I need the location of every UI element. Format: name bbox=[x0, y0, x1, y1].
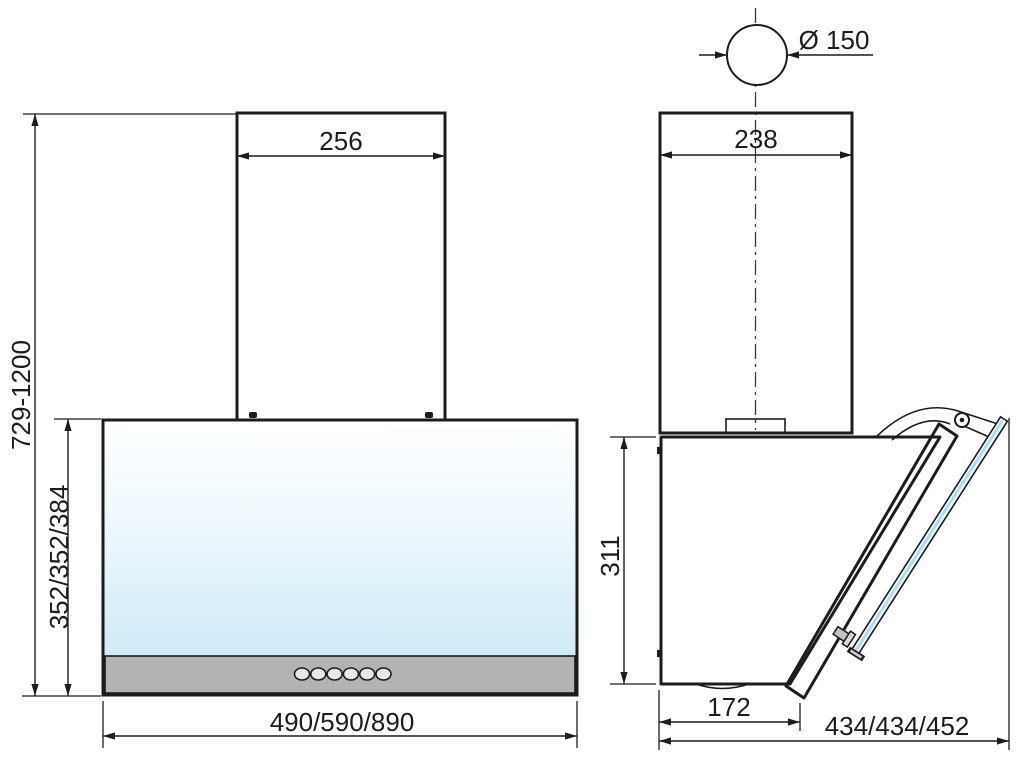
hinge-bracket-arc bbox=[876, 408, 1001, 437]
control-button bbox=[327, 668, 342, 680]
dim-front-chimney-width: 256 bbox=[237, 126, 445, 156]
chimney-screw-right bbox=[425, 412, 433, 418]
tilt-panel-frame bbox=[786, 424, 957, 698]
overall-height-label: 729-1200 bbox=[6, 340, 36, 450]
hood-dimension-drawing: 256 729-1200 352/352/384 490/590/890 bbox=[0, 0, 1020, 757]
front-body-width-label: 490/590/890 bbox=[270, 707, 415, 737]
dim-side-chimney-depth: 238 bbox=[660, 124, 852, 155]
side-chimney-depth-label: 238 bbox=[734, 124, 777, 154]
front-view: 256 729-1200 352/352/384 490/590/890 bbox=[6, 113, 577, 748]
control-button bbox=[376, 668, 391, 680]
control-button bbox=[360, 668, 375, 680]
control-button bbox=[343, 668, 358, 680]
front-chimney-width-label: 256 bbox=[319, 126, 362, 156]
duct-outlet-circle bbox=[727, 25, 787, 85]
side-view: Ø 150 238 bbox=[595, 8, 1009, 750]
technical-drawing-page: 256 729-1200 352/352/384 490/590/890 bbox=[0, 0, 1020, 757]
front-chimney bbox=[237, 113, 445, 423]
side-overall-depth-label: 434/434/452 bbox=[825, 711, 970, 741]
control-button bbox=[311, 668, 326, 680]
dim-front-body-height: 352/352/384 bbox=[44, 419, 101, 696]
dim-front-body-width: 490/590/890 bbox=[103, 701, 577, 748]
side-body-height-label: 311 bbox=[595, 535, 625, 576]
side-mount-mark-top bbox=[657, 447, 662, 454]
side-body bbox=[661, 437, 940, 684]
hinge-pivot-center bbox=[960, 418, 965, 423]
chimney-screw-left bbox=[249, 412, 257, 418]
control-button bbox=[295, 668, 310, 680]
front-body-height-label: 352/352/384 bbox=[44, 485, 74, 630]
side-mount-mark-bottom bbox=[657, 650, 662, 657]
side-bottom-depth-label: 172 bbox=[707, 692, 750, 722]
dim-side-body-height: 311 bbox=[595, 437, 656, 684]
front-glass-panel bbox=[103, 420, 577, 695]
duct-diameter-label: Ø 150 bbox=[799, 25, 870, 55]
